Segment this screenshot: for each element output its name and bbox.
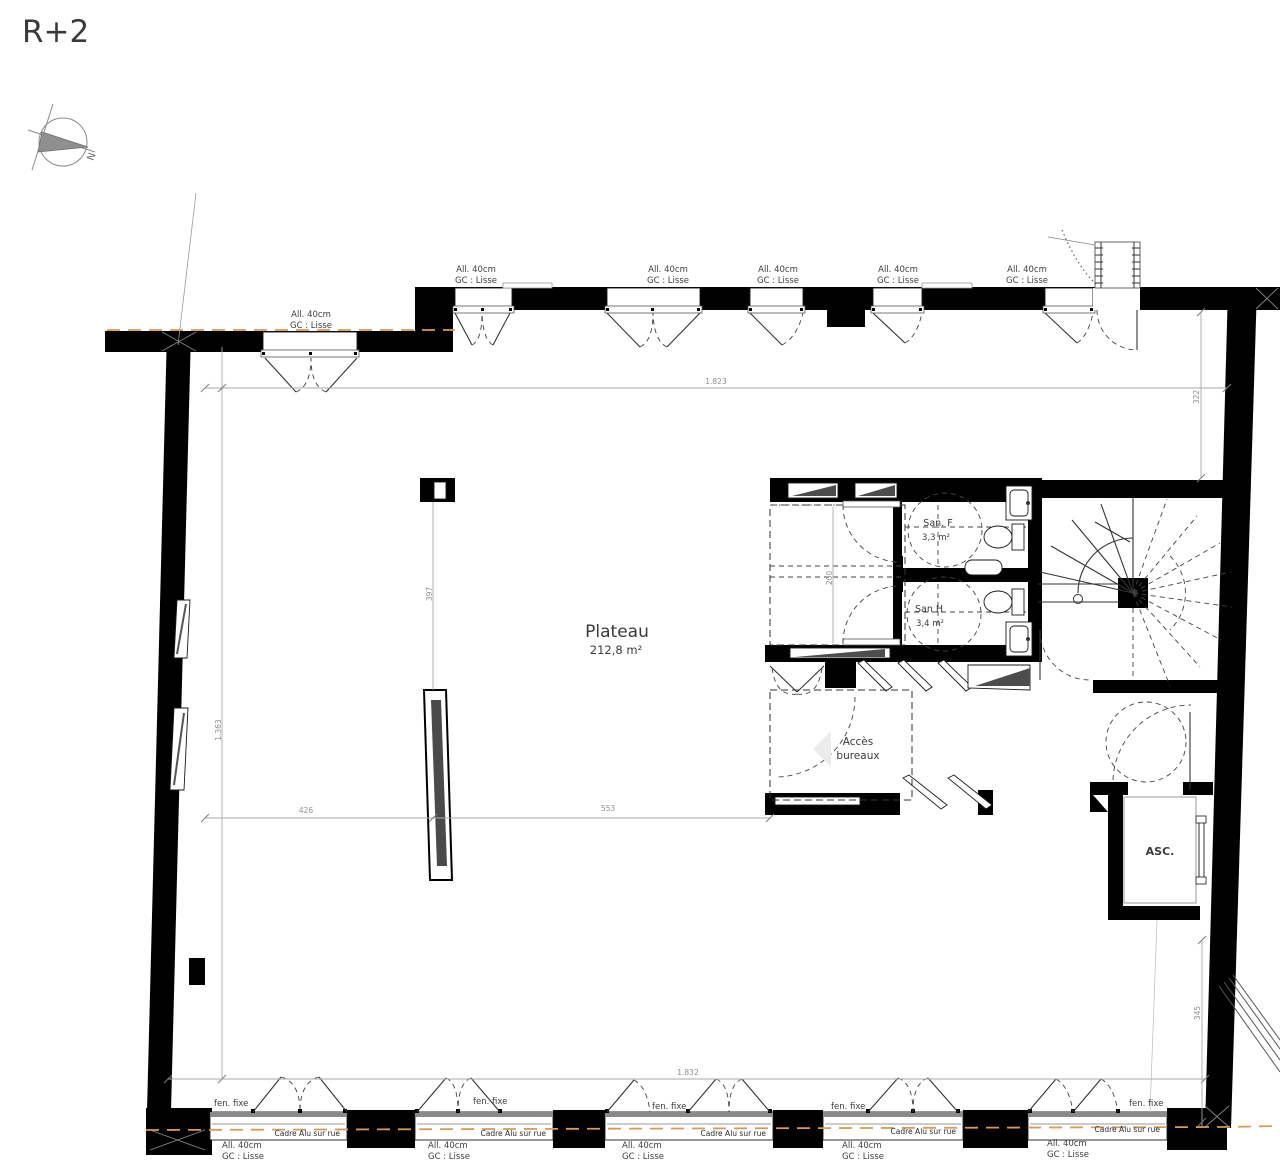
dimension-right-lower: 345 (1193, 1006, 1202, 1021)
svg-text:All. 40cm: All. 40cm (1007, 265, 1047, 275)
dimension-top: 1.823 (705, 377, 727, 386)
wall-corner-marks (150, 288, 1278, 1150)
san-annex: 200 (770, 505, 905, 645)
allege-annotation: All. 40cmGC : Lisse (290, 310, 332, 331)
turning-circle (1106, 702, 1186, 782)
allege-annotation: All. 40cmGC : Lisse (622, 1141, 664, 1162)
page-title: R+2 (22, 14, 89, 50)
walls (105, 287, 1280, 1155)
svg-text:GC : Lisse: GC : Lisse (290, 321, 332, 331)
spiral-staircase (1038, 498, 1232, 686)
fixed-window-label: fen. fixe (1129, 1099, 1163, 1109)
floor-plan-sheet: R+2 N (0, 0, 1280, 1163)
window (261, 332, 359, 392)
svg-text:GC : Lisse: GC : Lisse (455, 276, 497, 286)
svg-text:All. 40cm: All. 40cm (758, 265, 798, 275)
corridor-doors (770, 660, 1030, 809)
allege-annotation: All. 40cmGC : Lisse (877, 265, 919, 286)
svg-text:All. 40cm: All. 40cm (222, 1141, 262, 1151)
svg-text:GC : Lisse: GC : Lisse (877, 276, 919, 286)
allege-annotation: All. 40cmGC : Lisse (455, 265, 497, 286)
svg-text:All. 40cm: All. 40cm (842, 1141, 882, 1151)
svg-text:GC : Lisse: GC : Lisse (1006, 276, 1048, 286)
frame-label: Cadre Alu sur rue (481, 1129, 547, 1138)
svg-text:All. 40cm: All. 40cm (878, 265, 918, 275)
allege-annotation: All. 40cmGC : Lisse (757, 265, 799, 286)
room-label-bureaux: bureaux (836, 750, 879, 762)
svg-text:All. 40cm: All. 40cm (648, 265, 688, 275)
fixed-window-label: fen. fixe (831, 1102, 865, 1112)
exterior-dashed-lines (107, 330, 1280, 1130)
sink-icon (1006, 622, 1032, 656)
room-label-plateau: Plateau (585, 622, 649, 642)
svg-text:All. 40cm: All. 40cm (291, 310, 331, 320)
allege-annotation: All. 40cmGC : Lisse (1047, 1139, 1089, 1160)
svg-text:All. 40cm: All. 40cm (1047, 1139, 1087, 1149)
fixed-window-label: fen. fixe (214, 1099, 248, 1109)
frame-label: Cadre Alu sur rue (701, 1129, 767, 1138)
svg-text:All. 40cm: All. 40cm (456, 265, 496, 275)
toilet-icon (984, 589, 1024, 615)
frame-label: Cadre Alu sur rue (1095, 1125, 1161, 1134)
room-area-san-f: 3,3 m² (922, 533, 950, 543)
vestibule: Accès bureaux (770, 690, 912, 800)
room-label-san-f: San. F (923, 518, 952, 529)
window (453, 288, 514, 345)
svg-text:GC : Lisse: GC : Lisse (428, 1152, 470, 1162)
entry-door (1093, 288, 1140, 350)
window (871, 288, 924, 343)
allege-annotation: All. 40cmGC : Lisse (647, 265, 689, 286)
frame-label: Cadre Alu sur rue (275, 1129, 341, 1138)
svg-text:All. 40cm: All. 40cm (622, 1141, 662, 1151)
svg-text:GC : Lisse: GC : Lisse (1047, 1150, 1089, 1160)
sink-icon (1006, 486, 1032, 520)
room-area-san-h: 3,4 m² (916, 619, 944, 629)
fixed-window-label: fen. fixe (652, 1102, 686, 1112)
north-label: N (86, 151, 99, 162)
window (605, 288, 702, 347)
elevator-door-rail (1196, 816, 1206, 884)
top-windows (261, 230, 1140, 392)
dimension-mid-right: 553 (601, 804, 616, 813)
exterior-gangway (1048, 230, 1140, 288)
svg-text:GC : Lisse: GC : Lisse (222, 1152, 264, 1162)
central-column (424, 482, 452, 880)
room-label-san-h: San H (915, 604, 943, 615)
frame-label: Cadre Alu sur rue (891, 1127, 957, 1136)
svg-text:All. 40cm: All. 40cm (428, 1141, 468, 1151)
toilet-icon (984, 524, 1024, 550)
allege-annotation: All. 40cmGC : Lisse (1006, 265, 1048, 286)
san-h-room (905, 577, 1032, 656)
room-label-acces: Accès (843, 736, 873, 748)
dimension-mid-left: 426 (299, 806, 314, 815)
window (748, 288, 805, 345)
dimension-bottom: 1.832 (677, 1068, 699, 1077)
svg-text:GC : Lisse: GC : Lisse (647, 276, 689, 286)
allege-annotation: All. 40cmGC : Lisse (222, 1141, 264, 1162)
fixed-window-label: fen. fixe (473, 1097, 507, 1107)
room-label-elevator: ASC. (1146, 845, 1175, 858)
dimension-san-annex: 200 (825, 571, 834, 586)
dimension-column-span: 397 (425, 587, 434, 602)
allege-annotation: All. 40cmGC : Lisse (842, 1141, 884, 1162)
window (1043, 288, 1095, 343)
dimension-right-upper: 322 (1192, 390, 1201, 405)
dimension-left: 1.363 (214, 719, 223, 741)
svg-text:GC : Lisse: GC : Lisse (622, 1152, 664, 1162)
allege-annotation: All. 40cmGC : Lisse (428, 1141, 470, 1162)
svg-text:GC : Lisse: GC : Lisse (842, 1152, 884, 1162)
floor-plan-drawing: R+2 N (0, 0, 1280, 1163)
svg-text:GC : Lisse: GC : Lisse (757, 276, 799, 286)
room-area-plateau: 212,8 m² (590, 643, 642, 657)
north-compass-icon: N (28, 104, 98, 170)
